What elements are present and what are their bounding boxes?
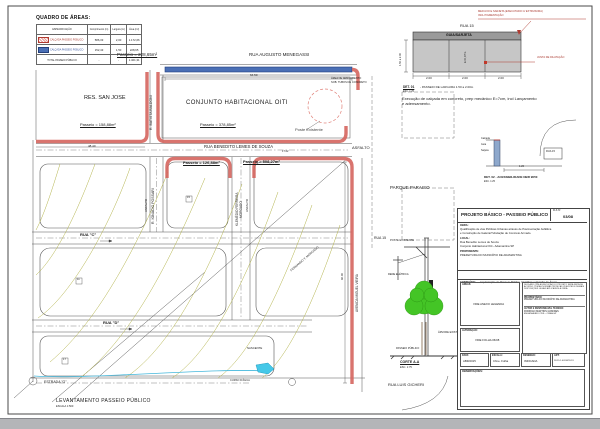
corte-rede-label: REDE ELÉTRICA: [388, 274, 409, 277]
desenho-box: DESENHO: INDICADA: [521, 353, 551, 367]
responsibility-box: DECLARO QUE A EXECUÇÃO DO PROJETO SERÁ F…: [522, 282, 587, 354]
table-row: CALÇADA PASSEIO PÚBLICO 586,33 2,00 1.17…: [37, 35, 142, 45]
quadro-table: ESPECIFICAÇÃO Comprimento (m) Largura (m…: [36, 24, 142, 65]
passeio-centro-label: Passeio = 126,88m²: [183, 161, 220, 165]
asfalto-label: ASFALTO: [352, 146, 370, 150]
det01-largura-label: 1.50 a 2.00: [400, 53, 403, 66]
pond: [256, 363, 274, 374]
autor-crea: ENGENHEIRO CIVIL - CREA-SP: [524, 313, 585, 315]
conteudo-section: CONTEÚDO: Implantação do Passeio Público…: [458, 269, 587, 280]
det01-rua-label: RUA 15: [460, 24, 474, 28]
row-spec: CALÇADA PASSEIO PÚBLICO: [50, 38, 83, 41]
det02-dim: 1.20: [519, 166, 524, 169]
row-spec: CALÇADA PASSEIO PÚBLICO: [50, 48, 83, 51]
row-comp: 586,33: [88, 35, 111, 45]
row-larg: 2,00: [110, 35, 126, 45]
escala-label: ESCALA:: [492, 355, 503, 357]
street-label-klemedio-2: MORGADO: [240, 201, 243, 218]
alteracao-value: VIDE FOLHA 06/08: [475, 339, 499, 342]
det02-guia-label: Guia: [481, 144, 486, 146]
street-label-rua-augusto: RUA AUGUSTO MENEGASSI: [249, 53, 309, 58]
art-value: 28.15.1.0013678-19: [554, 360, 574, 362]
col-comprimento: Comprimento (m): [88, 25, 111, 35]
drawing-sheet: QUADRO DE ÁREAS: ESPECIFICAÇÃO Comprimen…: [0, 0, 600, 429]
data-box: DATA: ABR/2015: [460, 353, 489, 367]
corte-title: CORTE A-A: [400, 361, 419, 365]
sheet-footer-scale: ESCALA 1:500: [56, 406, 73, 409]
poste-existente-circle: [308, 89, 342, 123]
det01-drawing: [404, 19, 586, 79]
street-label-estrada: ESTRADA "G": [44, 381, 67, 385]
row-spec: TOTAL PASSEIO PÚBLICO: [47, 59, 77, 62]
det01-guia-label: GUIA/SARJETA: [446, 34, 472, 38]
street-label-rua-15: RUA 15: [374, 237, 386, 241]
asfalto-label-vert-1: ASFALTO: [145, 199, 148, 212]
arvore-crown: [405, 281, 443, 315]
passeio-norte-label: Passeio = 378,85m²: [200, 123, 236, 127]
areas-box: ÁREAS: VIDE ANEXO LEGENDA: [460, 282, 520, 326]
quadro-de-areas: QUADRO DE ÁREAS: ESPECIFICAÇÃO Comprimen…: [36, 15, 142, 65]
area-label-conjunto-oiti: CONJUNTO HABITACIONAL OITI: [186, 100, 288, 106]
sheet-number-value: 03/08: [563, 215, 573, 219]
area-label-parque-paraiso: PARQUE PARAISO: [390, 186, 430, 191]
project-title: PROJETO BÁSICO - PASSEIO PÚBLICO: [461, 213, 548, 218]
street-label-rua-c: RUA "C": [80, 233, 96, 237]
art-label: ART:: [554, 355, 559, 357]
block-outlines: [40, 162, 348, 376]
street-label-rua-luis: RUA LUIS GICHERI: [388, 383, 424, 387]
det01-nota-execucao-2: e adensamento.: [402, 102, 431, 106]
observacoes-label: OBSERVAÇÕES:: [462, 371, 483, 374]
alteracao-label: ALTERAÇÃO:: [462, 330, 478, 332]
passeio-projetado-vermelho: [36, 70, 358, 385]
col-area: Área (m²): [127, 25, 142, 35]
row-comp: 152,43: [88, 45, 111, 55]
det02-esc: ESC. 1:25: [484, 181, 495, 183]
art-box: ART: 28.15.1.0013678-19: [552, 353, 585, 367]
desenho-label: DESENHO:: [523, 355, 536, 357]
observacoes-box: OBSERVAÇÕES:: [460, 369, 585, 407]
sheet-number-box: FLS Nº 03/08: [550, 209, 587, 221]
corte-passeio-label: PASSEIO PÚBLICO: [396, 348, 419, 351]
street-label-rua-benedito: RUA BENEDITO LEMES DE SOUZA: [204, 145, 273, 149]
asfalto-label-vert-2: ASFALTO: [246, 199, 249, 212]
corte-esc: ESC. 1:75: [400, 367, 412, 370]
lot-number: 15: [187, 197, 190, 200]
det02-title: DET. 02 - ACESSIBILIDADE NBR 9050: [484, 176, 537, 179]
det01-nota-meiofio-2: INCL PIGMENTAÇÃO: [478, 15, 504, 18]
det01-title-2: - PASSEIO DE LARGURA 1.50 a 2.00m: [420, 86, 473, 89]
declaration-text: DECLARO QUE A EXECUÇÃO DO PROJETO SERÁ F…: [524, 284, 585, 290]
sheet-footer-title: LEVANTAMENTO PASSEIO PÚBLICO: [56, 399, 151, 404]
row-comp: -: [88, 55, 111, 65]
det02-calcada-label: Calçada: [481, 138, 490, 140]
street-label-r-batista: R. BATISTA BALDONI: [150, 95, 154, 130]
areas-label: ÁREAS:: [462, 284, 471, 286]
lot-markers: [62, 196, 192, 364]
data-value: ABR/2015: [463, 360, 476, 363]
curso-dagua-label: CURSO D'ÁGUA: [230, 380, 250, 383]
poste-existente-label: Poste Existente: [295, 128, 323, 132]
proprietario-value: PREFEITURA DO MUNICÍPIO DE ADAMANTINA: [524, 299, 585, 301]
det01-esc: ESC. 1:25: [403, 91, 414, 93]
data-label: DATA:: [462, 355, 469, 357]
det02-rua-label: RUA 15: [546, 151, 555, 154]
escala-box: ESCALA: Cfme. Folha: [490, 353, 520, 367]
nascente-label: NASCENTE: [247, 347, 262, 350]
passeio-sanjose-label: Passeio = 158,88m²: [80, 123, 116, 127]
desenho-value: INDICADA: [524, 360, 537, 363]
alteracao-box: ALTERAÇÃO: VIDE FOLHA 06/08: [460, 328, 520, 352]
street-label-avenida: AVENIDA MIGUEL VIEIRA: [356, 274, 359, 312]
areas-value: VIDE ANEXO LEGENDA: [473, 303, 504, 306]
det01-dim-3: 2.00: [498, 77, 504, 80]
obra-text-2: e Construção de Galeria/Tubulação de Con…: [460, 231, 585, 235]
dim-top: 64.50: [250, 74, 258, 77]
col-especificacao: ESPECIFICAÇÃO: [37, 25, 88, 35]
dim-sanjose: 48.40: [88, 145, 96, 148]
legend-swatch-red-hatch: [38, 37, 49, 43]
det02-sarjeta-label: Sarjeta: [481, 150, 489, 152]
det01-junta-label: JUNTA DE DILATAÇÃO: [537, 57, 564, 60]
col-largura: Largura (m): [110, 25, 126, 35]
street-label-rua-d: RUA "D": [103, 321, 119, 325]
tubos-label: SOB. TUBOS DE CONCRETO: [331, 82, 367, 85]
local-text-2: Conjunto Habitacional Oiti - Adamantina …: [460, 244, 585, 248]
corte-poste-label: POSTE EXISTENTE: [390, 240, 414, 243]
lot-number: 11: [77, 279, 80, 282]
scan-edge-band: [0, 418, 600, 429]
area-label-res-san-jose: RES. SAN JOSE: [84, 96, 126, 102]
title-block: PROJETO BÁSICO - PASSEIO PÚBLICO FLS Nº …: [457, 208, 590, 410]
lot-number: 17: [63, 359, 66, 362]
obra-section: OBRA: Qualificação de vias Públicas Urba…: [458, 223, 587, 271]
det01-dim-2: 2.00: [462, 77, 468, 80]
det01-title: DET. 01: [403, 86, 414, 89]
street-label-r-ignacio: R. IGNÁCIO POSSARI: [152, 188, 156, 224]
dim-benedito: 17.02: [282, 151, 289, 154]
det01-dim-1: 2.00: [426, 77, 432, 80]
row-area: 1.172,66: [127, 35, 142, 45]
title-block-header: PROJETO BÁSICO - PASSEIO PÚBLICO FLS Nº …: [458, 209, 587, 223]
quadro-title: QUADRO DE ÁREAS:: [36, 15, 142, 21]
passeio-executado-azul: [165, 67, 352, 72]
passeio-azul-label: Passeio = 228,65m²: [117, 53, 157, 58]
proponente-text: PREFEITURA DO MUNICÍPIO DE ADAMANTINA: [460, 253, 585, 257]
legend-swatch-blue: [38, 47, 49, 53]
det01-espessura-label: E=0,07m: [464, 52, 467, 63]
passeio-sul-label: Passeio = 508,27m²: [243, 160, 280, 164]
sheet-number-label: FLS Nº: [553, 210, 561, 212]
dim-avenida: 96.00: [341, 273, 344, 280]
escala-value: Cfme. Folha: [493, 360, 508, 363]
